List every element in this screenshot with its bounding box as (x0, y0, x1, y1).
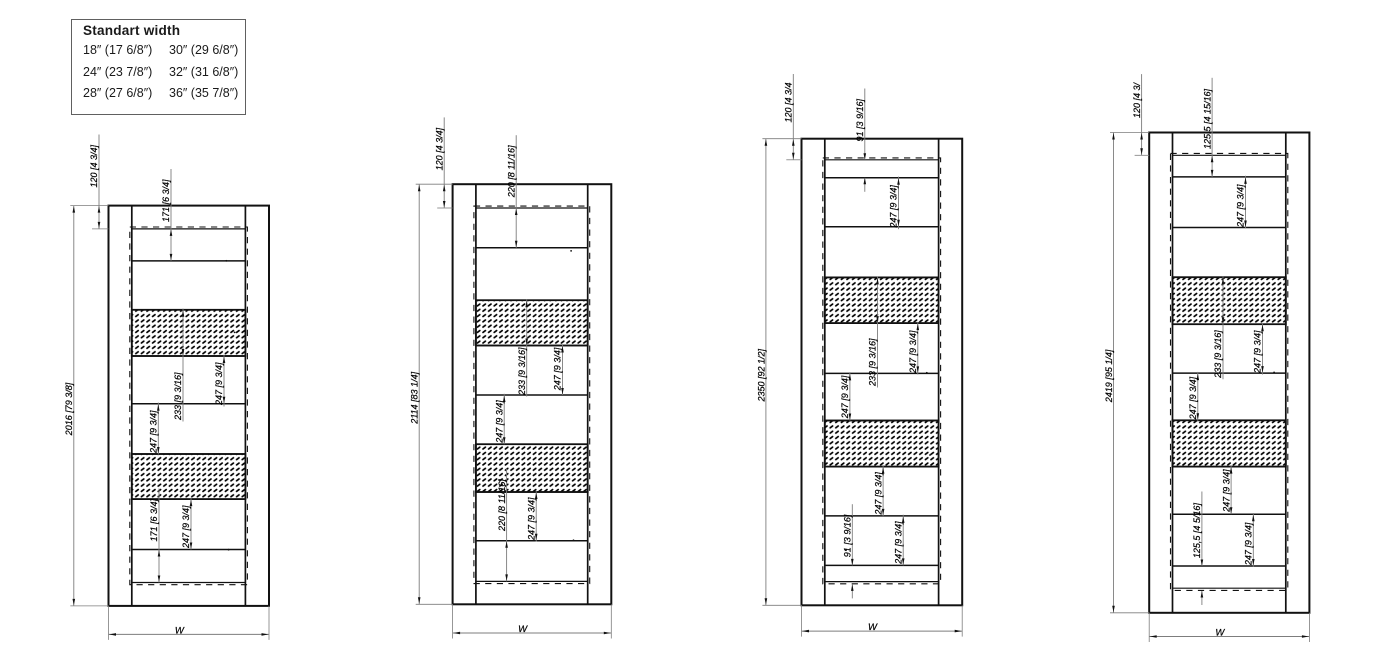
svg-text:247 [9 3/4]: 247 [9 3/4] (889, 185, 899, 229)
svg-text:125,5 [4 5/16]: 125,5 [4 5/16] (1192, 503, 1202, 559)
svg-text:247 [9 3/4]: 247 [9 3/4] (1188, 376, 1198, 420)
svg-text:247 [9 3/4]: 247 [9 3/4] (1253, 330, 1263, 374)
svg-text:247 [9 3/4]: 247 [9 3/4] (149, 410, 159, 454)
svg-text:247 [9 3/4]: 247 [9 3/4] (873, 472, 883, 516)
svg-text:247 [9 3/4]: 247 [9 3/4] (553, 347, 563, 391)
svg-text:171 [6 3/4]: 171 [6 3/4] (149, 498, 159, 541)
svg-text:W: W (518, 624, 528, 635)
svg-text:91 [3 9/16]: 91 [3 9/16] (843, 514, 853, 557)
svg-text:120 [4 3/4]: 120 [4 3/4] (434, 127, 444, 170)
svg-text:W: W (1215, 628, 1225, 639)
svg-text:233 [9 3/16]: 233 [9 3/16] (173, 372, 183, 421)
svg-text:125.5 [4 15/16]: 125.5 [4 15/16] (1202, 88, 1212, 149)
svg-text:2419 [95 1/4]: 2419 [95 1/4] (1104, 349, 1114, 403)
svg-text:247 [9 3/4]: 247 [9 3/4] (526, 497, 536, 541)
svg-text:247 [9 3/4]: 247 [9 3/4] (1244, 522, 1254, 566)
svg-text:247 [9 3/4]: 247 [9 3/4] (494, 400, 504, 444)
svg-text:247 [9 3/4]: 247 [9 3/4] (840, 375, 850, 419)
svg-text:220 [8 11/16]: 220 [8 11/16] (506, 145, 516, 198)
svg-text:247 [9 3/4]: 247 [9 3/4] (908, 330, 918, 374)
svg-text:120 [4 3/: 120 [4 3/ (1132, 81, 1142, 118)
svg-text:233 [9 3/16]: 233 [9 3/16] (868, 338, 878, 387)
svg-text:2016 [79 3/8]: 2016 [79 3/8] (64, 382, 74, 436)
svg-text:220 [8 11/16]: 220 [8 11/16] (497, 479, 507, 532)
svg-text:171 [6 3/4]: 171 [6 3/4] (161, 179, 171, 222)
svg-text:120 [4 3/4]: 120 [4 3/4] (89, 144, 99, 187)
svg-text:W: W (868, 622, 878, 633)
svg-text:233 [9 3/16]: 233 [9 3/16] (1213, 330, 1223, 379)
svg-text:247 [9 3/4]: 247 [9 3/4] (1221, 469, 1231, 513)
svg-text:W: W (175, 626, 185, 637)
svg-text:233 [9 3/16]: 233 [9 3/16] (517, 347, 527, 396)
svg-text:247 [9 3/4]: 247 [9 3/4] (893, 521, 903, 565)
svg-text:247 [9 3/4]: 247 [9 3/4] (181, 505, 191, 549)
svg-text:91 [3 9/16]: 91 [3 9/16] (855, 98, 865, 141)
svg-text:2350 [92 1/2]: 2350 [92 1/2] (756, 348, 766, 402)
svg-text:247 [9 3/4]: 247 [9 3/4] (1236, 184, 1246, 228)
svg-text:2114 [83 1/4]: 2114 [83 1/4] (410, 371, 420, 424)
svg-text:120 [4 3/4: 120 [4 3/4 (784, 82, 794, 122)
svg-text:247 [9 3/4]: 247 [9 3/4] (214, 362, 224, 406)
